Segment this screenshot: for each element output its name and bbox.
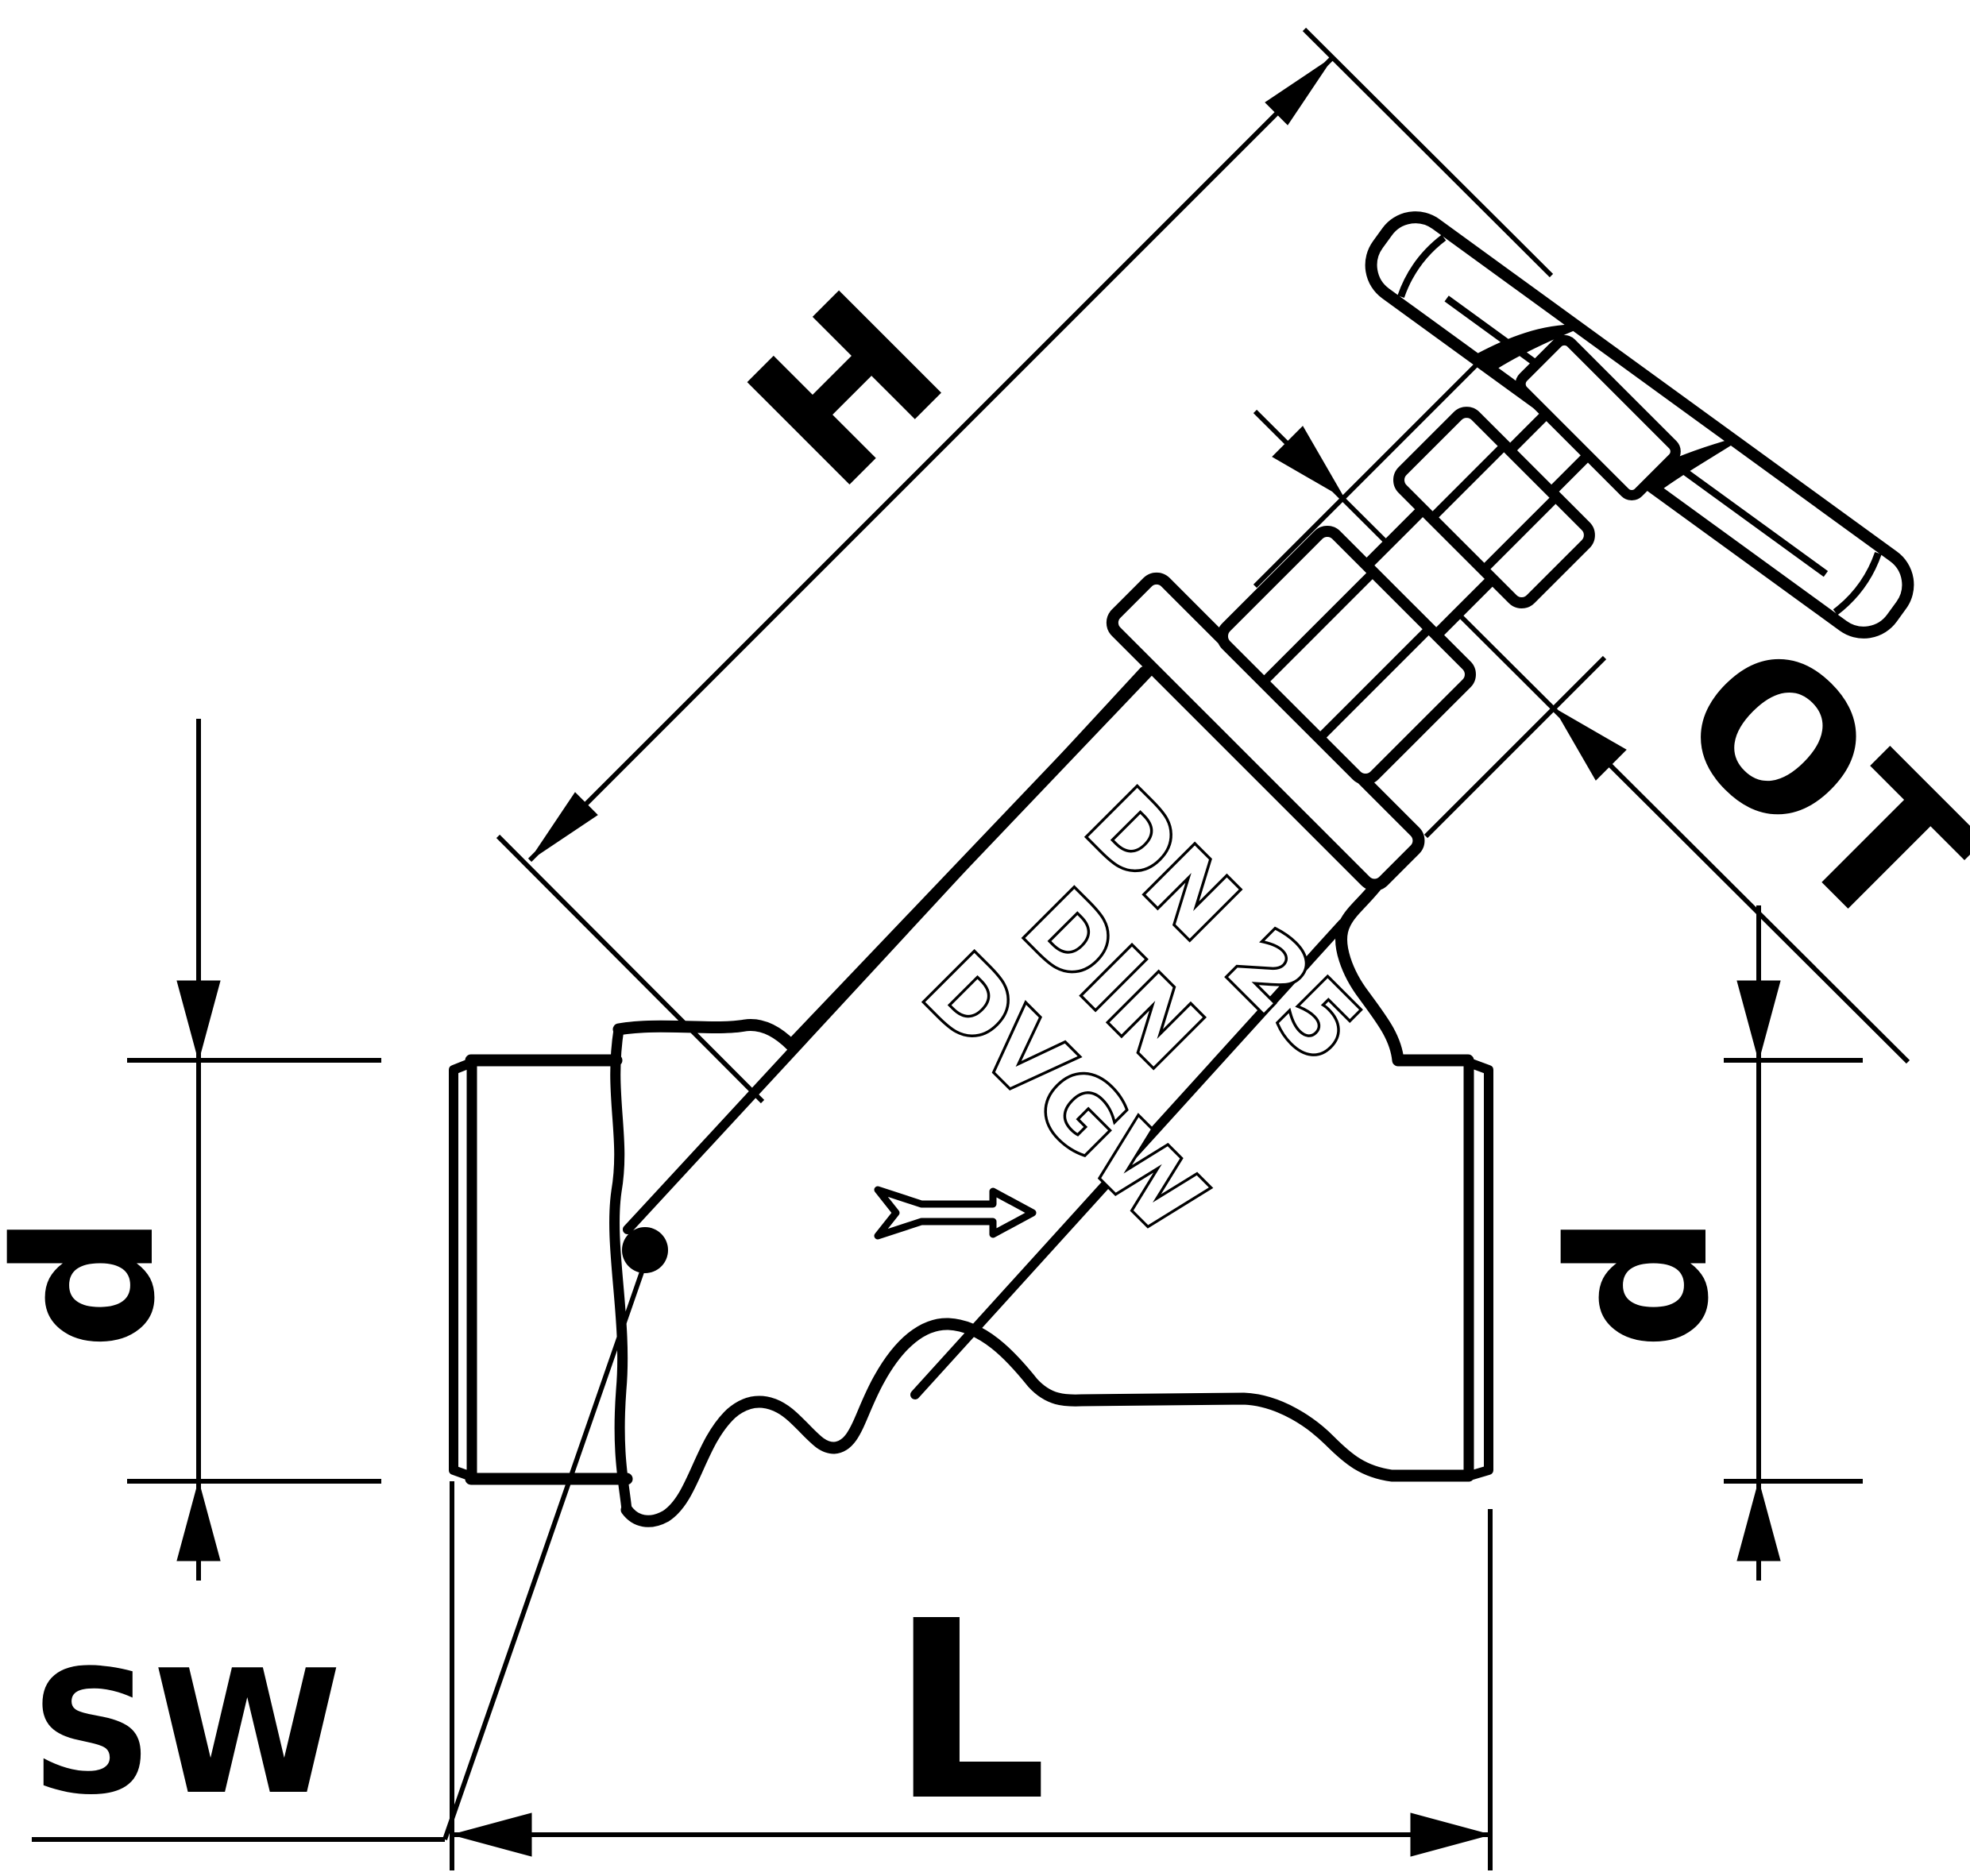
arrowhead-icon — [1411, 1813, 1490, 1856]
body-top-right-edge — [1342, 886, 1468, 1060]
valve-technical-drawing: H OT d d L — [0, 0, 1970, 1876]
arrowhead-icon — [177, 981, 220, 1060]
l-label: L — [890, 1569, 1048, 1855]
arrowhead-icon — [1737, 981, 1780, 1060]
cast-marking-text: DN 25 DIN DVGW — [902, 769, 1389, 1256]
arrowhead-icon — [452, 1813, 531, 1856]
sw-label: SW — [30, 1633, 342, 1832]
body-bottom-profile — [627, 1324, 1468, 1521]
arrowhead-icon — [1737, 1481, 1780, 1561]
ot-label-group: OT — [1635, 598, 1970, 977]
d-left-label-group: d — [0, 1214, 197, 1350]
d-right-label: d — [1528, 1214, 1751, 1350]
drawing-sheet: H OT d d L — [0, 0, 1970, 1876]
h-label: H — [706, 249, 987, 531]
sw-reference-dot — [622, 1227, 668, 1273]
dimension-d-left — [127, 719, 381, 1581]
d-left-label: d — [0, 1214, 197, 1350]
h-label-group: H — [706, 249, 987, 531]
d-right-label-group: d — [1528, 1214, 1751, 1350]
arrowhead-icon — [177, 1481, 220, 1561]
flow-direction-arrow-icon — [878, 1190, 1033, 1236]
ot-label: OT — [1635, 598, 1970, 977]
hex-hub-face — [615, 1029, 627, 1510]
